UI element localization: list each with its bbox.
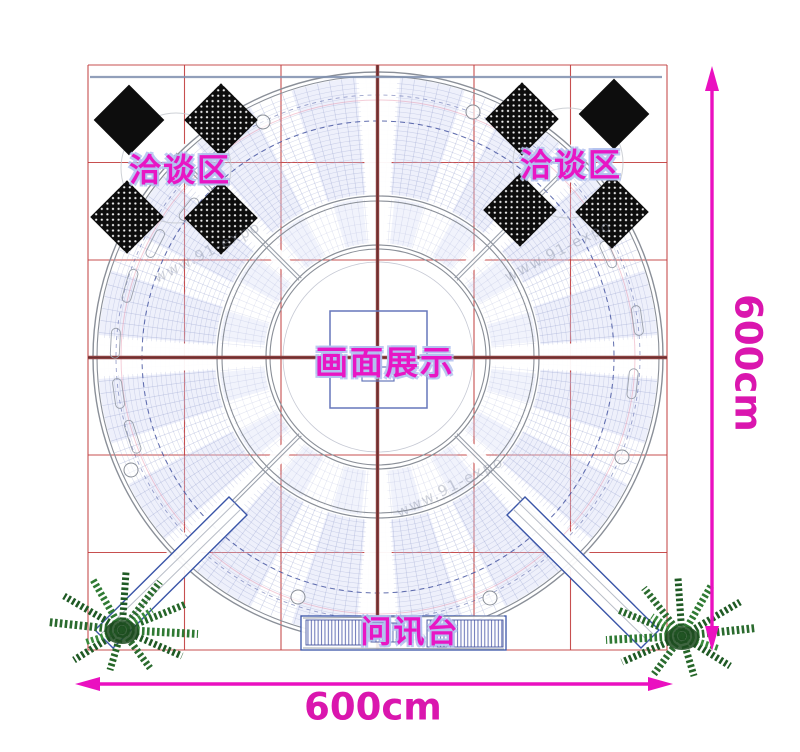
label-negotiation-area-right: 洽谈区 [520,140,622,186]
height-dimension-arrow [705,66,719,651]
floor-plan-page: www.91-expo www.91-expo www.91-expo 洽谈区 … [0,0,800,752]
sofa-table-solid [579,79,650,150]
label-display-area: 画面展示 [315,336,455,384]
width-dimension-label: 600cm [304,686,442,729]
height-dimension-label: 600cm [727,294,770,432]
label-negotiation-area-left: 洽谈区 [129,145,231,191]
label-info-desk: 问讯台 [361,607,460,652]
